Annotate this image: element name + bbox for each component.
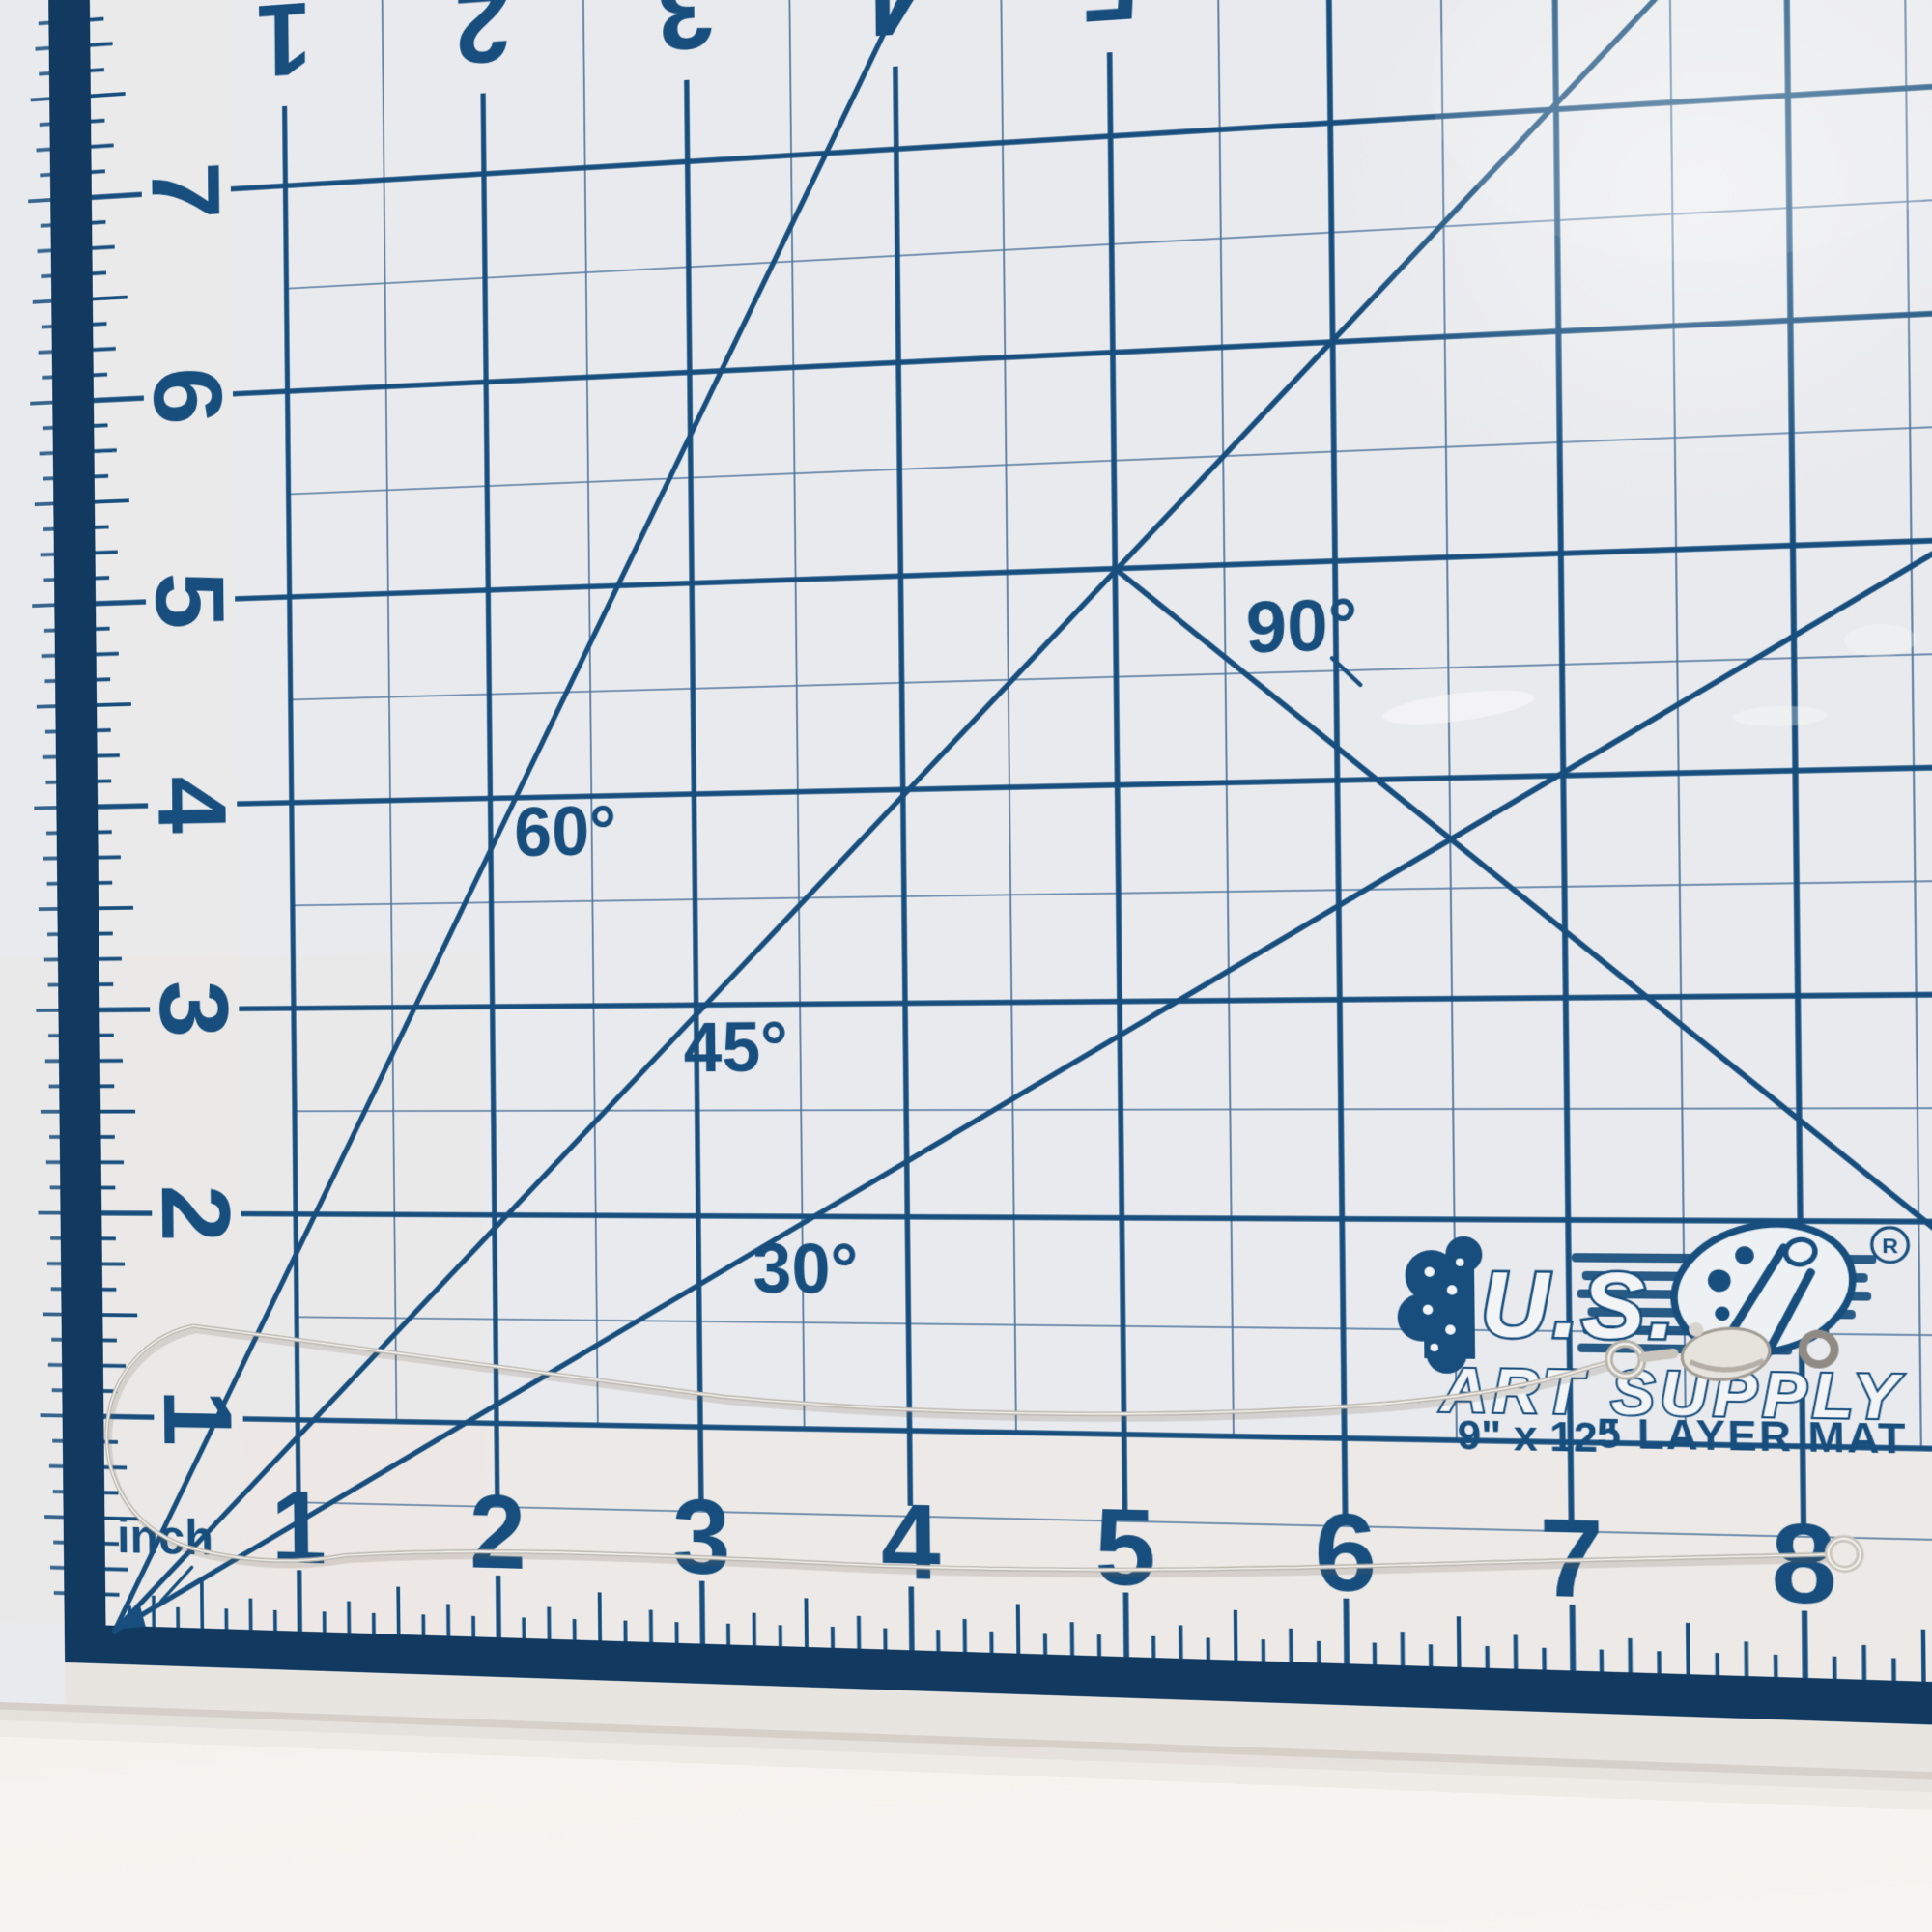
- bottom-ruler-tick: [1891, 1658, 1896, 1680]
- left-ruler-outer-tick: [47, 932, 58, 936]
- angle-label-45: 45°: [683, 1008, 788, 1087]
- bottom-ruler-tick: [1628, 1638, 1633, 1673]
- bottom-ruler-tick: [1686, 1623, 1690, 1674]
- left-ruler-tick: [100, 1059, 123, 1063]
- left-ruler-tick: [100, 1135, 114, 1139]
- left-ruler-outer-tick: [49, 1464, 63, 1468]
- left-ruler-outer-tick: [48, 983, 59, 987]
- left-ruler-outer-tick: [40, 122, 50, 126]
- bottom-ruler-tick: [1179, 1625, 1182, 1659]
- left-ruler-outer-tick: [50, 1185, 61, 1189]
- top-ruler-number: 3: [657, 0, 716, 72]
- bottom-ruler-tick: [573, 1619, 577, 1640]
- bottom-ruler-tick: [1070, 1622, 1074, 1655]
- bottom-ruler-tick: [649, 1610, 653, 1642]
- bottom-ruler-tick: [883, 1628, 887, 1649]
- cutting-mat: R U.S. ART SUPPLY 9" x 12" 5 LAYER MAT i…: [49, 0, 1932, 1932]
- left-ruler-tick: [97, 728, 110, 732]
- bottom-ruler-tick: [522, 1617, 526, 1638]
- left-ruler-tick: [102, 1263, 125, 1266]
- bottom-ruler-tick: [547, 1606, 551, 1638]
- bottom-ruler-tick: [396, 1587, 400, 1634]
- left-ruler-outer-tick: [53, 1490, 64, 1493]
- bottom-ruler-tick: [1401, 1632, 1406, 1665]
- left-ruler-outer-tick: [43, 527, 54, 531]
- bottom-ruler-tick: [1600, 1649, 1605, 1671]
- left-ruler-number: 3: [139, 980, 248, 1037]
- left-ruler-outer-tick: [43, 578, 54, 582]
- bottom-ruler-tick: [1861, 1645, 1866, 1680]
- left-ruler-number: 5: [135, 570, 244, 631]
- bottom-ruler-tick: [963, 1619, 967, 1652]
- bottom-ruler-tick: [1429, 1644, 1433, 1666]
- left-ruler-tick: [102, 1236, 116, 1240]
- bottom-ruler-tick: [675, 1622, 679, 1643]
- bottom-ruler-tick: [249, 1599, 253, 1631]
- bottom-ruler-tick: [273, 1610, 277, 1631]
- left-ruler-tick: [94, 423, 107, 427]
- left-ruler-tick: [105, 1593, 119, 1597]
- left-ruler-outer-tick: [54, 1591, 65, 1595]
- left-ruler-tick: [100, 1084, 114, 1088]
- left-ruler-outer-tick: [36, 1009, 58, 1012]
- left-ruler-tick: [99, 1034, 113, 1037]
- left-ruler-outer-tick: [49, 1135, 60, 1139]
- left-ruler-tick: [94, 373, 107, 377]
- bottom-ruler-tick: [1234, 1610, 1238, 1661]
- left-ruler-outer-tick: [41, 274, 51, 278]
- left-ruler-outer-tick: [38, 1211, 60, 1215]
- left-ruler-outer-tick: [42, 376, 52, 380]
- top-ruler-number: 4: [865, 0, 925, 59]
- bottom-ruler-tick: [1097, 1634, 1101, 1656]
- left-ruler-tick: [100, 1110, 135, 1114]
- bottom-ruler-tick: [779, 1625, 782, 1646]
- bottom-ruler-tick: [1921, 1630, 1926, 1682]
- bottom-ruler-tick: [176, 1607, 180, 1628]
- bottom-ruler-tick: [857, 1616, 861, 1649]
- left-ruler-tick: [104, 1491, 118, 1494]
- left-ruler-outer-tick: [41, 223, 51, 227]
- bottom-ruler-tick: [471, 1616, 475, 1636]
- left-ruler-outer-tick: [49, 1085, 60, 1089]
- bottom-ruler-tick: [1715, 1653, 1719, 1675]
- bottom-ruler-tick: [1262, 1639, 1265, 1662]
- left-ruler-outer-tick: [42, 654, 55, 658]
- bottom-ruler-number: 5: [1094, 1486, 1156, 1609]
- left-ruler-tick: [96, 627, 109, 631]
- left-ruler-outer-tick: [51, 1287, 62, 1291]
- left-ruler-number: 7: [130, 159, 240, 223]
- cutting-mat-artwork: R U.S. ART SUPPLY 9" x 12" 5 LAYER MAT i…: [0, 0, 1932, 1932]
- left-ruler-tick: [99, 957, 122, 961]
- left-ruler-outer-tick: [50, 1236, 61, 1240]
- left-ruler-outer-tick: [50, 1566, 64, 1570]
- bottom-ruler-tick: [1485, 1646, 1489, 1668]
- left-ruler-number: 6: [132, 365, 241, 428]
- logo-brand-line1: U.S.: [1480, 1253, 1678, 1358]
- bottom-ruler-tick: [1317, 1641, 1321, 1663]
- top-ruler-number: 2: [454, 0, 512, 86]
- top-ruler-number: 1: [256, 0, 312, 99]
- left-ruler-outer-tick: [37, 704, 56, 708]
- left-ruler-tick: [102, 1313, 137, 1317]
- bottom-ruler-number: 2: [469, 1473, 526, 1592]
- bottom-ruler-tick: [1744, 1641, 1748, 1676]
- left-ruler-outer-tick: [47, 1262, 61, 1265]
- bottom-ruler-tick: [936, 1630, 940, 1651]
- left-ruler-tick: [96, 576, 109, 580]
- left-ruler-tick: [101, 1160, 124, 1164]
- angle-label-30: 30°: [753, 1230, 859, 1310]
- left-ruler-tick: [93, 322, 106, 327]
- bottom-ruler-tick: [1657, 1651, 1662, 1673]
- left-ruler-outer-tick: [48, 1363, 62, 1367]
- left-ruler-outer-tick: [32, 603, 54, 608]
- left-ruler-outer-tick: [41, 553, 54, 556]
- bottom-ruler-tick: [1457, 1616, 1462, 1667]
- left-ruler-outer-tick: [44, 957, 58, 961]
- clasp-link: [1644, 1353, 1673, 1358]
- left-ruler-outer-tick: [46, 831, 57, 835]
- left-ruler-outer-tick: [45, 781, 56, 784]
- left-ruler-tick: [99, 906, 133, 910]
- bottom-ruler-tick: [1043, 1633, 1047, 1654]
- left-ruler-outer-tick: [40, 451, 53, 455]
- left-ruler-number: 4: [137, 775, 246, 835]
- left-ruler-tick: [98, 753, 120, 757]
- left-ruler-outer-tick: [41, 1413, 63, 1417]
- bottom-ruler-number: 1: [270, 1469, 327, 1586]
- bottom-ruler-number: 8: [1771, 1500, 1838, 1629]
- bottom-ruler-tick: [1774, 1655, 1778, 1677]
- left-ruler-outer-tick: [34, 806, 56, 810]
- left-ruler-tick: [103, 1338, 117, 1342]
- left-ruler-outer-tick: [43, 857, 57, 861]
- left-ruler-outer-tick: [35, 502, 54, 507]
- left-ruler-outer-tick: [52, 1439, 63, 1443]
- bottom-ruler-tick: [598, 1592, 602, 1640]
- bottom-ruler-number: 6: [1314, 1491, 1378, 1615]
- left-ruler-tick: [104, 1465, 127, 1469]
- left-ruler-outer-tick: [45, 1059, 59, 1063]
- left-ruler-outer-tick: [52, 1388, 63, 1392]
- bottom-ruler-tick: [831, 1627, 835, 1648]
- bottom-ruler-tick: [1289, 1629, 1293, 1662]
- bottom-ruler-tick: [347, 1601, 351, 1633]
- registered-mark-letter: R: [1882, 1236, 1898, 1259]
- left-ruler-tick: [97, 677, 110, 681]
- bottom-ruler-tick: [421, 1614, 425, 1634]
- bottom-ruler-tick: [804, 1598, 808, 1647]
- bottom-ruler-tick: [1016, 1604, 1021, 1653]
- bottom-ruler-tick: [446, 1604, 450, 1635]
- bottom-ruler-tick: [989, 1632, 993, 1653]
- left-ruler-tick: [102, 1288, 116, 1292]
- bottom-ruler-tick: [200, 1581, 204, 1629]
- left-ruler-tick: [105, 1567, 128, 1571]
- bottom-ruler-tick: [323, 1611, 327, 1632]
- left-ruler-outer-tick: [39, 21, 49, 26]
- bottom-ruler-tick: [623, 1621, 627, 1642]
- left-ruler-tick: [95, 526, 108, 529]
- logo-size-text: 9" x 12": [1457, 1411, 1618, 1462]
- left-ruler-outer-tick: [39, 71, 49, 76]
- bottom-ruler-tick: [1542, 1648, 1547, 1670]
- left-ruler-tick: [99, 982, 113, 986]
- left-ruler-outer-tick: [40, 173, 50, 177]
- left-ruler-outer-tick: [41, 1110, 60, 1114]
- bottom-ruler-tick: [372, 1613, 376, 1634]
- angle-label-60: 60°: [514, 792, 617, 872]
- left-ruler-tick: [99, 931, 112, 935]
- top-ruler-number: 5: [1078, 0, 1140, 45]
- left-ruler-outer-tick: [42, 325, 52, 328]
- bottom-ruler-tick: [224, 1608, 228, 1629]
- angle-label-90: 90°: [1245, 584, 1358, 669]
- bottom-ruler-tick: [1373, 1643, 1377, 1665]
- photo-of-cutting-mat-with-chain: R U.S. ART SUPPLY 9" x 12" 5 LAYER MAT i…: [0, 0, 1932, 1932]
- left-ruler-tick: [101, 1186, 115, 1190]
- bottom-ruler-tick: [1833, 1657, 1837, 1679]
- left-ruler-outer-tick: [44, 1515, 64, 1519]
- left-ruler-outer-tick: [43, 426, 53, 430]
- left-ruler-outer-tick: [39, 350, 52, 354]
- left-ruler-tick: [95, 474, 108, 478]
- left-ruler-outer-tick: [51, 1338, 62, 1342]
- left-ruler-outer-tick: [43, 755, 56, 759]
- left-ruler-outer-tick: [45, 729, 56, 733]
- bottom-ruler-tick: [1207, 1637, 1210, 1659]
- left-ruler-outer-tick: [53, 1541, 64, 1545]
- left-ruler-tick: [99, 881, 112, 885]
- left-ruler-tick: [98, 780, 111, 783]
- bottom-ruler-tick: [753, 1613, 756, 1646]
- left-ruler-number: 1: [143, 1388, 252, 1447]
- left-ruler-tick: [99, 855, 121, 859]
- bottom-ruler-tick: [1151, 1636, 1155, 1658]
- left-ruler-outer-tick: [44, 679, 55, 683]
- bottom-ruler-number: 3: [672, 1477, 731, 1597]
- left-ruler-outer-tick: [43, 1312, 62, 1316]
- bottom-ruler-tick: [1514, 1634, 1519, 1668]
- left-ruler-tick: [98, 830, 111, 834]
- left-ruler-outer-tick: [39, 907, 58, 911]
- bottom-ruler-tick: [726, 1624, 730, 1645]
- left-ruler-outer-tick: [44, 629, 55, 633]
- left-ruler-tick: [93, 271, 106, 276]
- left-ruler-tick: [103, 1364, 126, 1368]
- left-ruler-number: 2: [141, 1184, 250, 1242]
- bottom-ruler-number: 4: [880, 1482, 941, 1604]
- left-ruler-outer-tick: [43, 476, 53, 480]
- logo-layer-text: 5 LAYER MAT: [1597, 1409, 1908, 1463]
- left-ruler-outer-tick: [46, 1160, 60, 1164]
- left-ruler-tick: [97, 652, 119, 657]
- left-ruler-outer-tick: [48, 1034, 59, 1037]
- left-ruler-outer-tick: [47, 882, 58, 886]
